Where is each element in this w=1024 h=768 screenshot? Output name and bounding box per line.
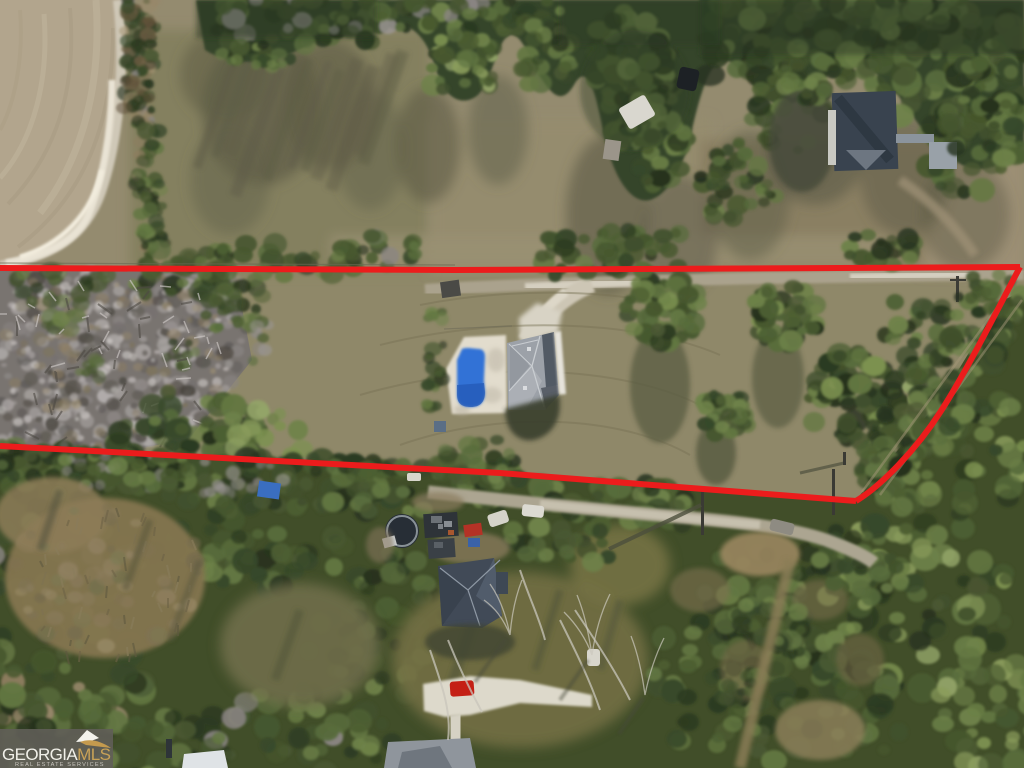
svg-text:REAL ESTATE SERVICES: REAL ESTATE SERVICES	[15, 762, 105, 768]
